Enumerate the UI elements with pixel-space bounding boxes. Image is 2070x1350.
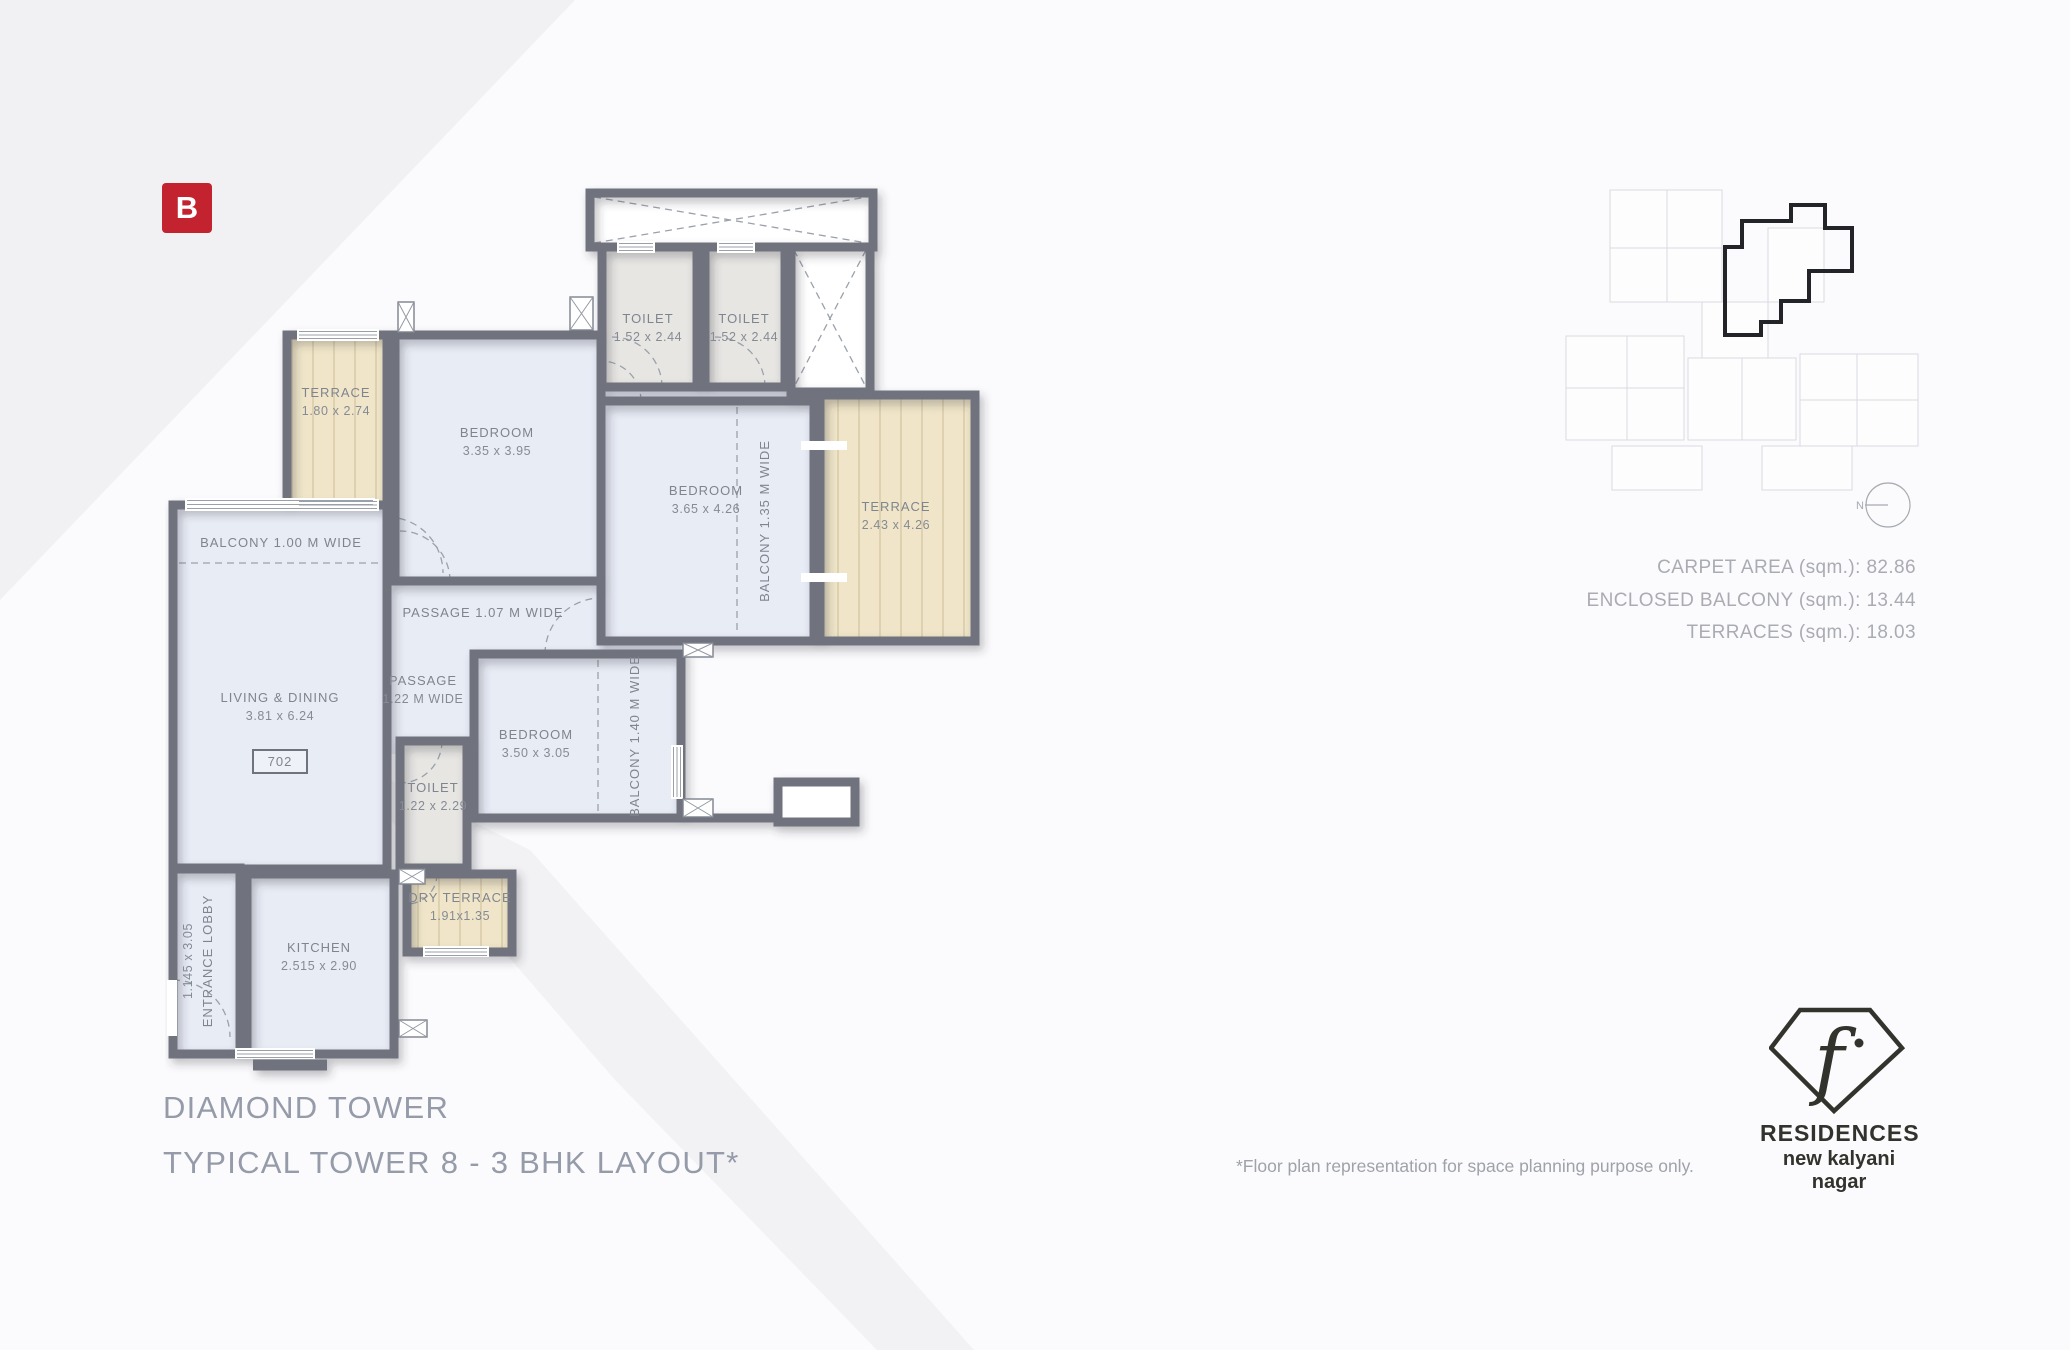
layout-title: TYPICAL TOWER 8 - 3 BHK LAYOUT* [163, 1145, 740, 1181]
toilet-b-label: TOILET [718, 311, 769, 326]
north-compass: N [1850, 472, 1922, 538]
key-plan [1552, 168, 1952, 498]
bedroom-a-label: BEDROOM [460, 425, 534, 440]
residences-wordmark: RESIDENCES [1760, 1120, 1918, 1147]
balcony-100-label: BALCONY 1.00 M WIDE [200, 535, 362, 550]
terrace-large-dims: 2.43 x 4.26 [862, 518, 930, 532]
balcony-140-label: BALCONY 1.40 M WIDE [627, 655, 642, 817]
floor-plan-poster: B [0, 0, 2070, 1350]
terrace-small-label: TERRACE [301, 385, 370, 400]
north-label: N [1856, 500, 1864, 512]
entrance-lobby-label: ENTRANCE LOBBY [200, 895, 215, 1027]
balcony-135-label: BALCONY 1.35 M WIDE [757, 440, 772, 602]
tower-title: DIAMOND TOWER [163, 1090, 740, 1126]
terrace-large-label: TERRACE [861, 499, 930, 514]
entrance-lobby-dims: 1.145 x 3.05 [181, 923, 195, 999]
gem-dot [1855, 1039, 1864, 1048]
terraces-line: TERRACES (sqm.): 18.03 [1396, 617, 1916, 650]
passage-122-label-line2: 1.22 M WIDE [383, 692, 464, 706]
bedroom-c-label: BEDROOM [499, 727, 573, 742]
residences-gem-logo: f [1769, 1003, 1909, 1117]
kitchen-dims: 2.515 x 2.90 [281, 959, 357, 973]
dry-terrace-label: DRY TERRACE [408, 890, 511, 905]
passage-107-label: PASSAGE 1.07 M WIDE [402, 605, 563, 620]
area-statement: CARPET AREA (sqm.): 82.86 ENCLOSED BALCO… [1396, 552, 1916, 650]
living-dims: 3.81 x 6.24 [246, 709, 314, 723]
bedroom-c-dims: 3.50 x 3.05 [502, 746, 570, 760]
toilet-b-dims: 1.52 x 2.44 [710, 330, 778, 344]
floor-plan-drawing: TOILET 1.52 x 2.44 TOILET 1.52 x 2.44 TE… [165, 185, 995, 1085]
plan-titles: DIAMOND TOWER TYPICAL TOWER 8 - 3 BHK LA… [163, 1090, 740, 1200]
enclosed-balcony-line: ENCLOSED BALCONY (sqm.): 13.44 [1396, 585, 1916, 618]
toilet-a-label: TOILET [622, 311, 673, 326]
disclaimer-note: *Floor plan representation for space pla… [1236, 1156, 1694, 1177]
passage-122-label-line1: PASSAGE [389, 673, 457, 688]
kitchen-label: KITCHEN [287, 940, 351, 955]
bedroom-b-dims: 3.65 x 4.26 [672, 502, 740, 516]
toilet-c-dims: 1.22 x 2.29 [399, 799, 467, 813]
unit-number: 702 [268, 754, 293, 769]
toilet-a-dims: 1.52 x 2.44 [614, 330, 682, 344]
bedroom-a-dims: 3.35 x 3.95 [463, 444, 531, 458]
bedroom-b-label: BEDROOM [669, 483, 743, 498]
dry-terrace-dims: 1.91x1.35 [430, 909, 490, 923]
living-label: LIVING & DINING [220, 690, 339, 705]
toilet-c-label: TOILET [407, 780, 458, 795]
carpet-area-line: CARPET AREA (sqm.): 82.86 [1396, 552, 1916, 585]
terrace-small-dims: 1.80 x 2.74 [302, 404, 370, 418]
residences-location: new kalyani nagar [1760, 1148, 1918, 1194]
